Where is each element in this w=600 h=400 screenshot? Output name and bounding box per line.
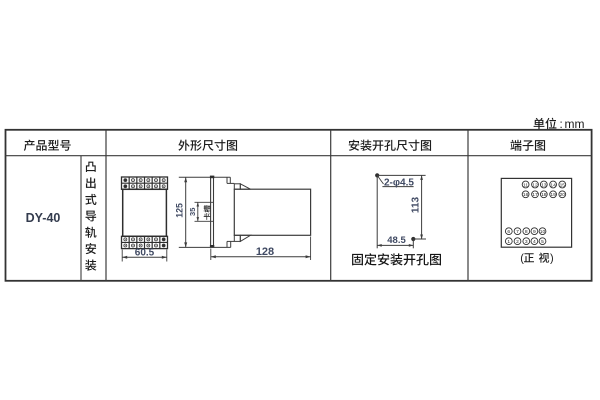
- svg-text:113: 113: [411, 196, 422, 213]
- svg-text:9: 9: [533, 229, 536, 235]
- svg-text:6: 6: [507, 229, 510, 235]
- svg-text:125: 125: [174, 203, 184, 218]
- svg-text:10: 10: [540, 229, 546, 235]
- svg-text::: :: [560, 119, 563, 131]
- svg-text:17: 17: [532, 192, 538, 198]
- svg-text:35: 35: [188, 208, 197, 216]
- svg-text:60.5: 60.5: [135, 247, 155, 258]
- svg-text:13: 13: [541, 182, 547, 188]
- svg-text:mm: mm: [565, 117, 585, 131]
- svg-text:DY-40: DY-40: [26, 211, 61, 225]
- svg-text:1: 1: [507, 239, 510, 245]
- svg-text:2-φ4.5: 2-φ4.5: [384, 177, 414, 188]
- svg-text:): ): [550, 253, 554, 265]
- svg-text:8: 8: [525, 229, 528, 235]
- svg-text:16: 16: [523, 192, 529, 198]
- svg-text:4: 4: [533, 239, 536, 245]
- svg-text:18: 18: [541, 192, 547, 198]
- svg-text:11: 11: [523, 182, 528, 188]
- svg-text:5: 5: [541, 239, 544, 245]
- svg-text:2: 2: [516, 239, 519, 245]
- svg-text:19: 19: [550, 192, 556, 198]
- svg-text:128: 128: [256, 246, 274, 258]
- svg-text:15: 15: [560, 182, 566, 188]
- svg-text:14: 14: [550, 182, 556, 188]
- svg-text:12: 12: [532, 182, 538, 188]
- svg-text:(: (: [520, 253, 524, 265]
- svg-text:48.5: 48.5: [387, 235, 406, 246]
- svg-text:20: 20: [560, 192, 566, 198]
- svg-text:7: 7: [516, 229, 519, 235]
- svg-text:3: 3: [525, 239, 528, 245]
